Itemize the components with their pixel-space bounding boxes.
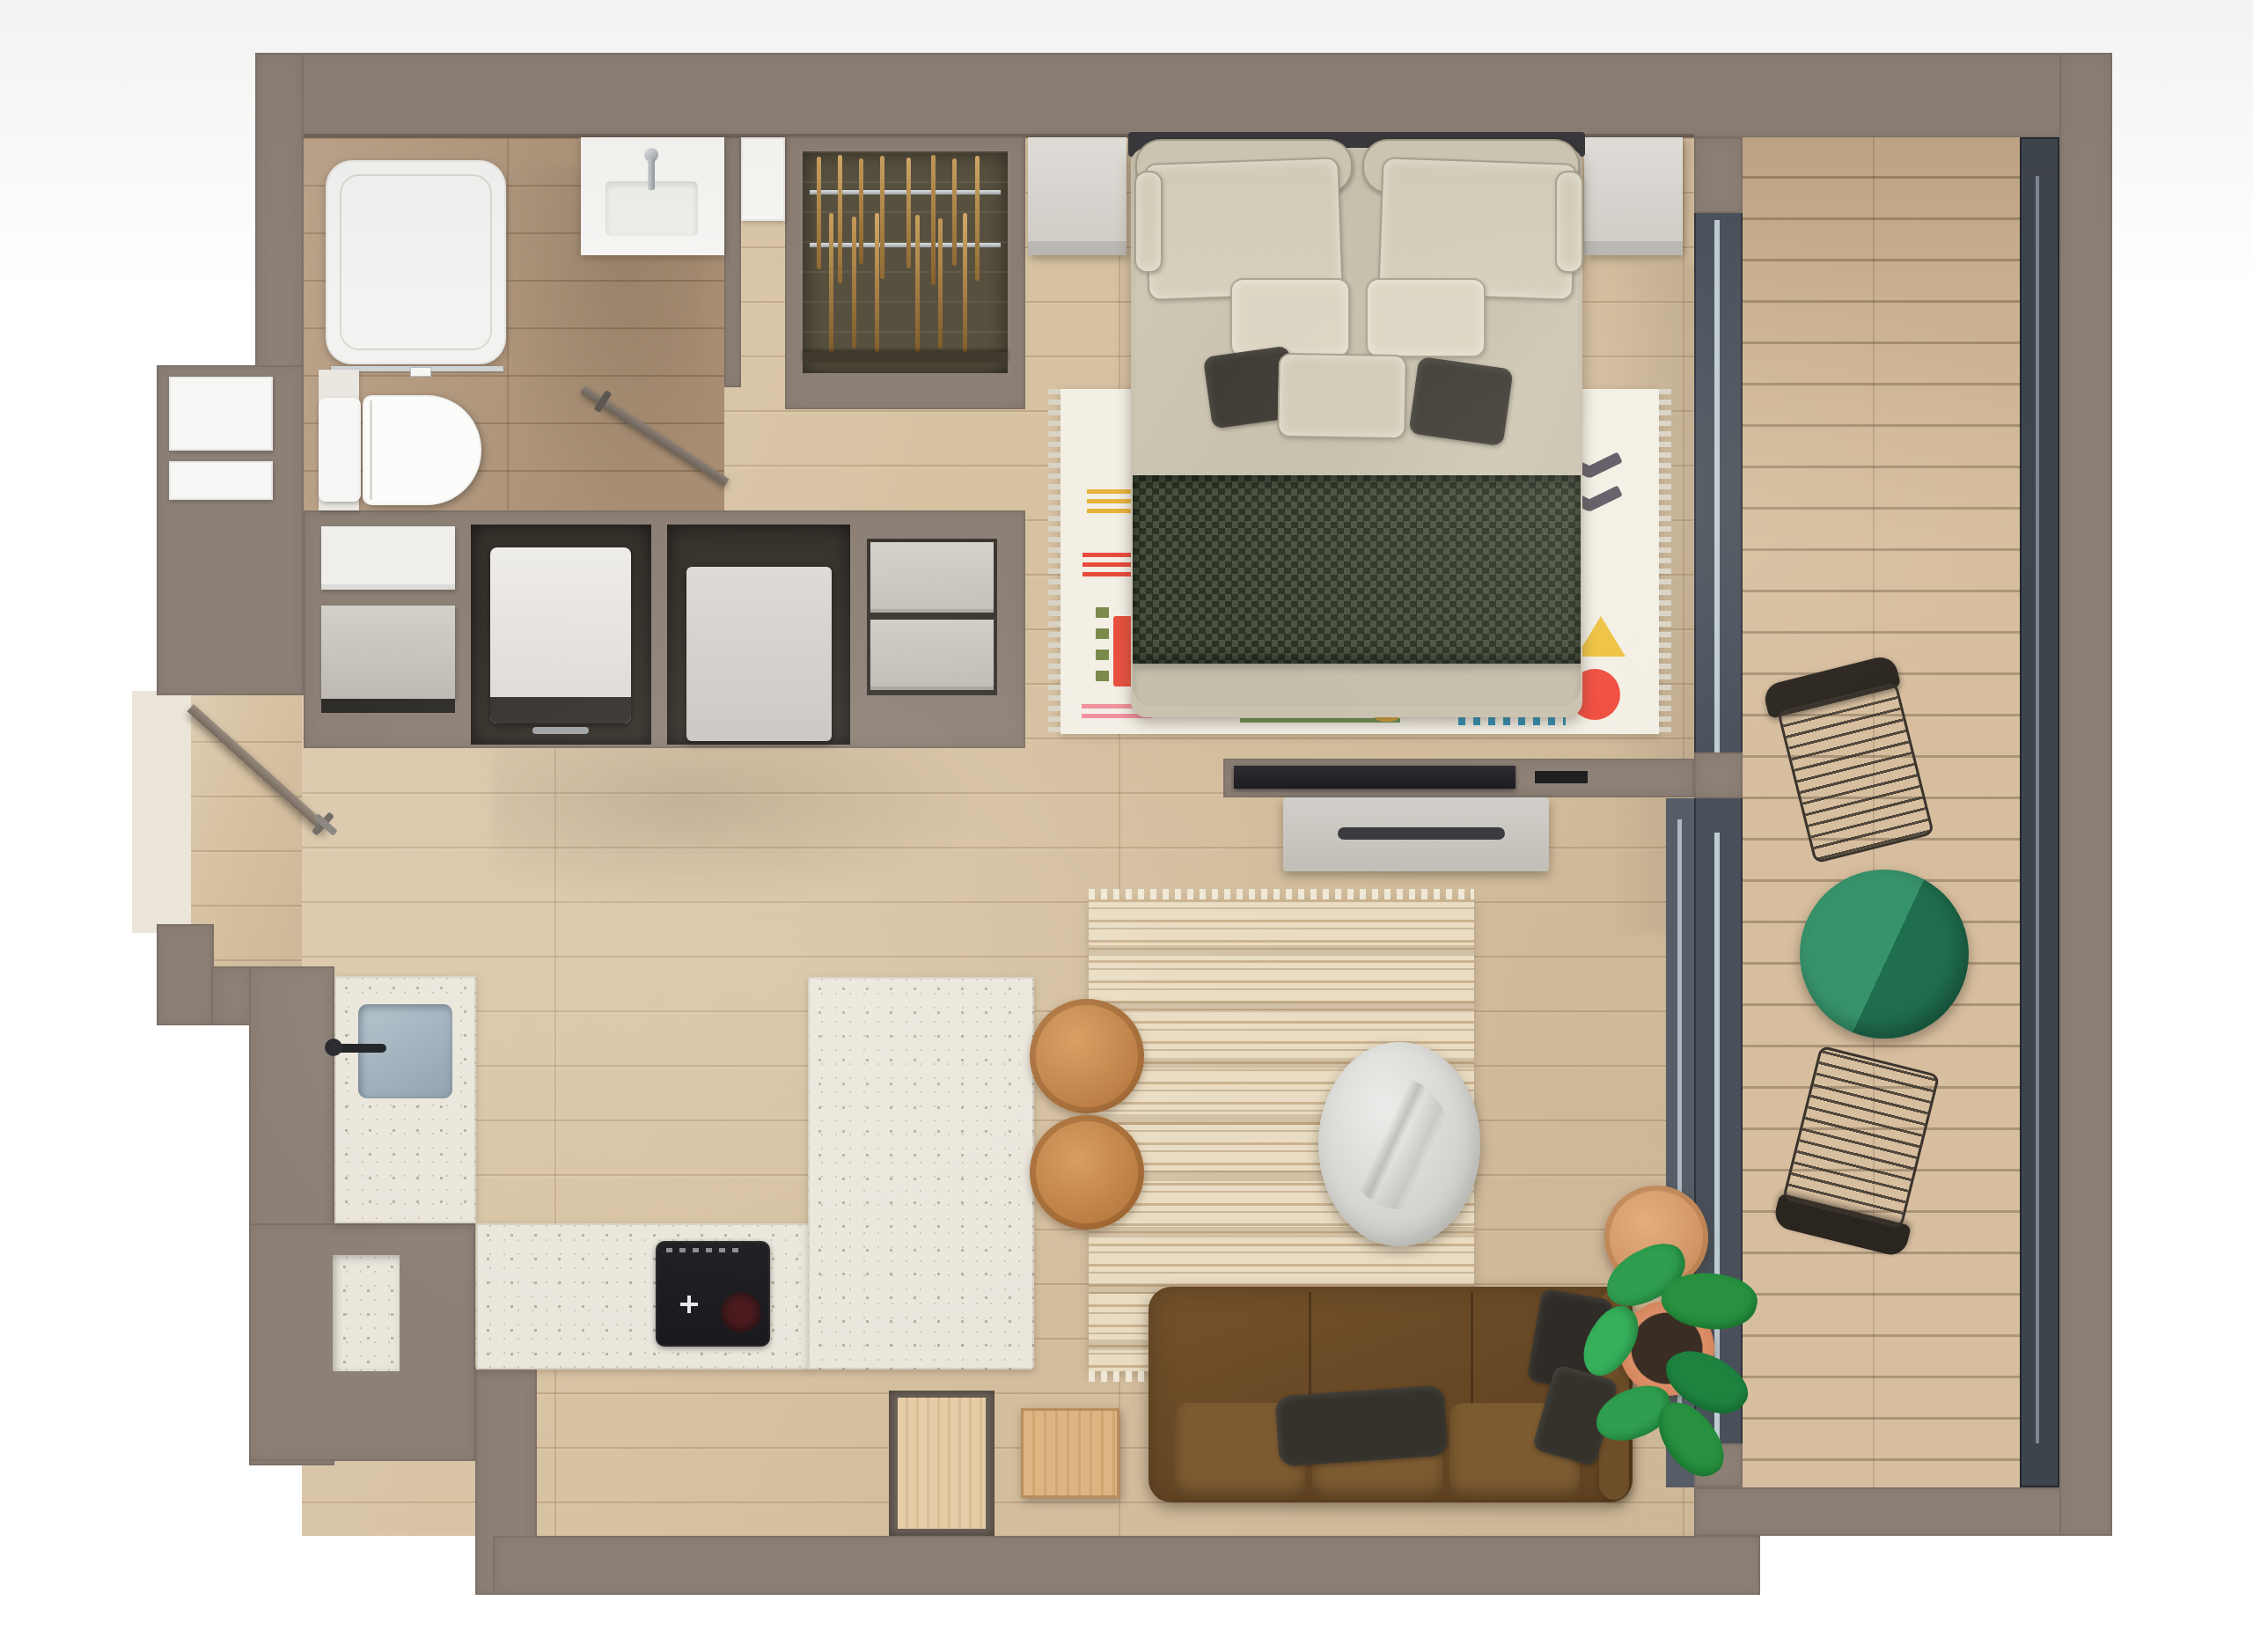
- tv-wall-slot-icon: [1535, 771, 1588, 783]
- wardrobe-shelf-edge: [803, 352, 1008, 363]
- bath-shelf-niche: [741, 137, 785, 221]
- hanger-icon: [931, 155, 936, 285]
- induction-cooktop: [656, 1241, 770, 1347]
- hanger-icon: [938, 218, 943, 349]
- toilet-bowl: [363, 395, 481, 505]
- wall-entry-jog: [211, 966, 251, 1025]
- wardrobe-zone: [803, 151, 1008, 373]
- shower-tray-inner-line: [340, 174, 492, 350]
- marble-coffee-table: [1318, 1042, 1480, 1246]
- balcony-zone: [1756, 616, 2020, 1285]
- shower-tray: [326, 160, 506, 364]
- bed-pillow-roll-left: [1134, 171, 1163, 273]
- niche-timber-panel: [898, 1398, 986, 1529]
- balcony-bistro-table-green: [1800, 870, 1969, 1039]
- cooktop-plus-icon: [680, 1296, 698, 1313]
- cooktop-controls-icon: [666, 1248, 744, 1252]
- bed-foot-frame: [1133, 664, 1581, 706]
- cooktop-burner-icon: [721, 1292, 761, 1333]
- vanity-unit: [581, 137, 724, 255]
- hanger-icon: [975, 156, 980, 281]
- appliance-dryer: [686, 567, 832, 741]
- utility-block-shelf-a: [169, 377, 273, 451]
- washer-niche: [471, 525, 651, 745]
- wall-top: [255, 53, 2112, 137]
- cube-side-table: [1021, 1408, 1119, 1498]
- faucet-spout-icon: [648, 158, 655, 190]
- balcony-railing: [2020, 137, 2059, 1487]
- window-post-top: [1694, 137, 1743, 213]
- hanger-icon: [859, 158, 863, 264]
- toilet-tank: [319, 398, 361, 502]
- hanger-icon: [838, 155, 842, 283]
- balcony-chair-top: [1760, 653, 1942, 868]
- bed: [1131, 132, 1582, 717]
- entry-threshold: [132, 691, 191, 933]
- utility-cabinet-grey: [321, 606, 455, 699]
- monstera-plant: [1558, 1250, 1751, 1479]
- shower-door-handle-icon: [410, 367, 431, 377]
- wall-entry-corner: [157, 924, 214, 1025]
- hanger-icon: [852, 217, 856, 349]
- kitchen-zone: [249, 966, 1129, 1595]
- drawer-unit: [867, 539, 997, 695]
- hanger-icon: [829, 213, 833, 354]
- utility-block-shelf-b: [169, 461, 273, 500]
- hanger-icon: [952, 158, 957, 266]
- floorplan-canvas: [0, 0, 2253, 1652]
- window-glass-line-a: [1714, 220, 1720, 757]
- nightstand-right: [1584, 137, 1683, 255]
- toilet-seat-seam: [370, 400, 372, 500]
- balcony-chair-bottom: [1768, 1042, 1950, 1259]
- kitchen-faucet-base-icon: [325, 1039, 342, 1056]
- utility-cabinet-white: [321, 526, 455, 590]
- bed-pillow-small-left: [1230, 278, 1350, 357]
- appliance-niche-2: [667, 525, 850, 745]
- bed-pillow-lumbar: [1277, 353, 1407, 440]
- entry-door-handle-icon: [310, 810, 340, 840]
- bathroom-zone: [302, 137, 742, 516]
- wall-right: [2059, 53, 2112, 1536]
- washer-handle-icon: [532, 727, 589, 734]
- soundbar-icon: [1338, 827, 1505, 840]
- media-console: [1283, 797, 1549, 871]
- hanger-icon: [817, 157, 821, 269]
- tv-screen: [1234, 766, 1515, 789]
- marble-vein-icon: [1345, 1077, 1450, 1209]
- toilet: [319, 395, 481, 505]
- bed-pillow-roll-right: [1555, 171, 1583, 273]
- window-post-mid: [1694, 753, 1743, 798]
- pantry-niche: [333, 1255, 400, 1371]
- hanger-icon: [906, 158, 911, 268]
- hanger-icon: [875, 213, 879, 357]
- utility-zone: [304, 510, 1025, 748]
- chair-wire-seat: [1777, 682, 1934, 864]
- bed-throw-houndstooth: [1133, 475, 1581, 664]
- washer-door-band: [490, 697, 631, 723]
- rug-fringe-top-icon: [1089, 889, 1474, 899]
- drawer-bottom: [870, 620, 994, 690]
- timber-storage-niche: [889, 1391, 994, 1536]
- wall-balcony-bottom: [1694, 1487, 2112, 1536]
- bed-pillow-small-right: [1366, 278, 1486, 357]
- hanger-icon: [915, 215, 920, 354]
- counter-peninsula: [808, 977, 1034, 1369]
- utility-cabinet-grey-plinth: [321, 699, 455, 713]
- railing-glass-line: [2036, 176, 2039, 1443]
- chair-wire-seat: [1782, 1046, 1940, 1230]
- nightstand-left: [1028, 137, 1126, 255]
- hanger-icon: [880, 156, 884, 279]
- sofa-cushion-center: [1274, 1384, 1448, 1466]
- bed-cushion-dark-right: [1408, 356, 1513, 446]
- drawer-top: [870, 542, 994, 613]
- hanger-icon: [963, 213, 967, 356]
